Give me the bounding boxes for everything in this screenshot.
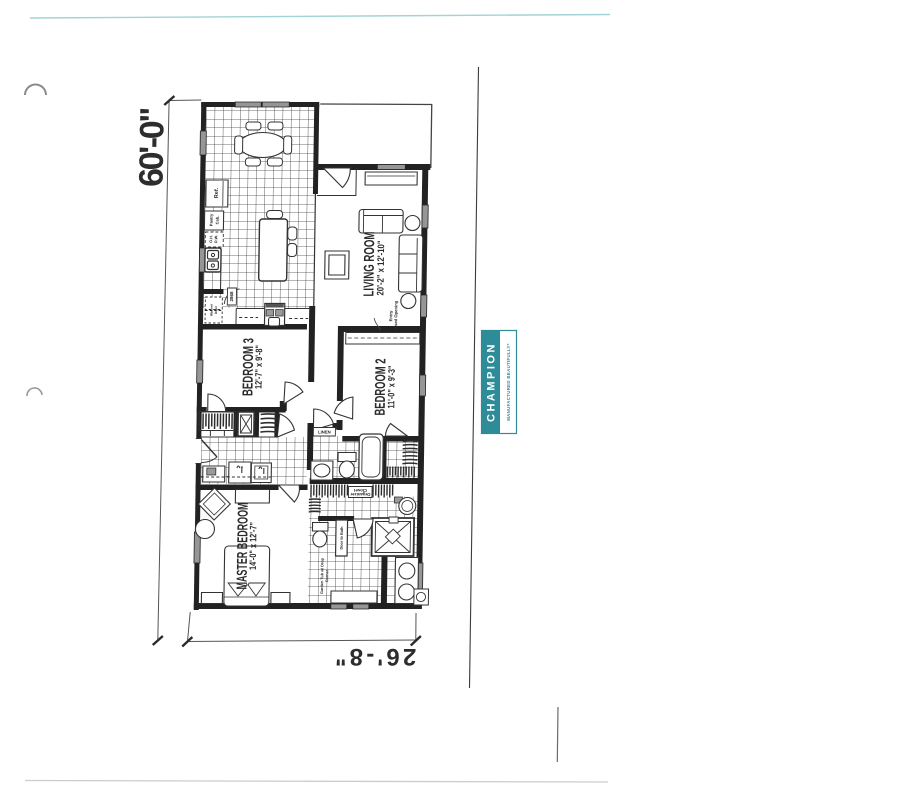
svg-text:60'-0": 60'-0" [133, 109, 172, 187]
svg-text:26'-8": 26'-8" [332, 643, 417, 670]
svg-text:O.H.: O.H. [209, 235, 213, 243]
svg-text:2868: 2868 [229, 291, 234, 302]
svg-text:MANUFACTURED BEAUTIFULLY*: MANUFACTURED BEAUTIFULLY* [506, 343, 511, 421]
svg-text:CHAMPION: CHAMPION [486, 342, 498, 422]
svg-text:11'-0" x 9'-3": 11'-0" x 9'-3" [386, 366, 398, 409]
svg-text:LINEN: LINEN [318, 430, 331, 435]
svg-text:Corner: Corner [325, 569, 329, 582]
svg-text:12'-7" x 9'-8": 12'-7" x 9'-8" [254, 345, 266, 389]
svg-text:Garden Tub w/ Drop: Garden Tub w/ Drop [320, 557, 325, 594]
svg-text:Dryer: Dryer [214, 305, 218, 314]
svg-text:Door to Bath: Door to Bath [340, 526, 344, 550]
svg-text:Cased Opening: Cased Opening [393, 300, 398, 331]
svg-text:Ref.: Ref. [214, 187, 220, 198]
svg-text:D.W.: D.W. [214, 235, 218, 243]
svg-text:Pantry: Pantry [209, 213, 214, 226]
svg-text:20'-2" x 12'-10": 20'-2" x 12'-10" [375, 241, 387, 296]
svg-text:Organizer: Organizer [350, 492, 370, 497]
svg-text:14'-0" x 12'-7": 14'-0" x 12'-7" [248, 522, 260, 570]
svg-text:Cab.: Cab. [215, 216, 220, 225]
